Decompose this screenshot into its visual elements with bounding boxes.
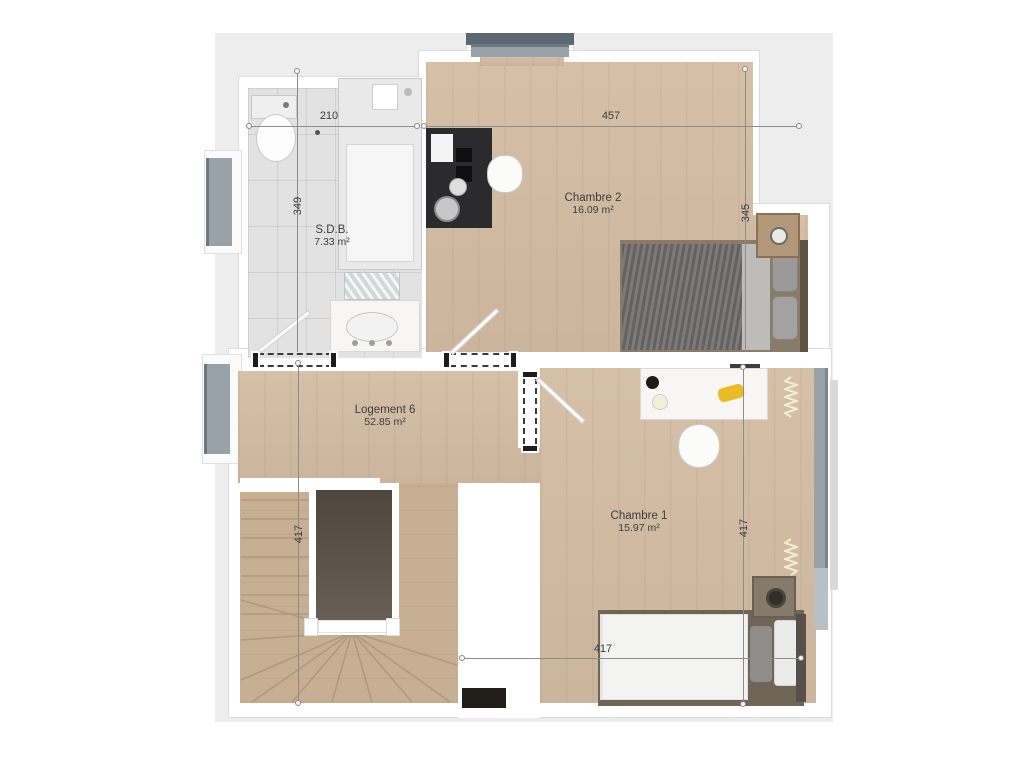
mirror-icon: [344, 272, 400, 300]
room-area: 52.85 m²: [340, 416, 430, 428]
chambre2-door-opening: [450, 353, 510, 367]
pot-icon: [646, 376, 659, 389]
room-label-sdb: S.D.B. 7.33 m²: [287, 224, 377, 248]
faucet-dot-icon: [352, 340, 358, 346]
plant-icon: [652, 394, 668, 410]
room-name: S.D.B.: [287, 224, 377, 236]
pillow-icon: [774, 620, 798, 686]
door-jamb: [329, 351, 338, 369]
door-jamb: [509, 351, 518, 369]
radiator-icon: [784, 376, 798, 418]
dim-label-chambre2-width: 457: [594, 110, 628, 122]
chambre1-door-opening: [523, 378, 537, 444]
round-mirror-icon: [449, 178, 467, 196]
dim-endpoint: [742, 66, 748, 72]
bed2-sheet-icon: [742, 244, 770, 350]
dim-label-bath-width: 210: [312, 110, 346, 122]
faucet-dot-icon: [369, 340, 375, 346]
bed2-blanket-icon: [622, 244, 742, 350]
shower-valve-icon: [372, 84, 398, 110]
dim-label-chambre1-width: 417: [586, 643, 620, 655]
dim-endpoint: [295, 360, 301, 366]
desk-paper-icon: [431, 134, 453, 162]
lamp-icon: [766, 588, 786, 608]
right-window-outer-sill: [830, 380, 838, 590]
dim-endpoint: [740, 364, 746, 370]
dim-endpoint: [798, 655, 804, 661]
chair-icon: [678, 424, 720, 468]
right-window-lower-icon: [814, 568, 828, 630]
room-area: 15.97 m²: [594, 522, 684, 534]
wall-strip-center: [458, 483, 540, 718]
left-window-top-icon: [206, 158, 232, 246]
door-mat-icon: [462, 688, 506, 708]
dim-line-chambre1-width: [463, 658, 801, 659]
bed1-duvet-icon: [600, 614, 748, 700]
room-name: Chambre 2: [548, 192, 638, 204]
dim-line-bath-width: [250, 126, 418, 127]
dim-endpoint: [414, 123, 420, 129]
shower-head-icon: [404, 88, 412, 96]
dim-endpoint: [294, 68, 300, 74]
room-label-chambre1: Chambre 1 15.97 m²: [594, 510, 684, 534]
desk-item-icon: [456, 148, 472, 162]
newel-post-left: [304, 618, 318, 636]
stairwell-opening: [316, 490, 392, 628]
bed2-headboard-icon: [800, 240, 808, 352]
dim-label-chambre2-height: 345: [740, 196, 752, 230]
dim-endpoint: [421, 123, 427, 129]
dim-endpoint: [796, 123, 802, 129]
stool-icon: [434, 196, 460, 222]
room-area: 7.33 m²: [287, 236, 377, 248]
floor-plan-page: 210 457 349 345 417 417 417 S.D.B. 7.33 …: [0, 0, 1024, 768]
dim-endpoint: [459, 655, 465, 661]
left-window-bottom-icon: [204, 364, 230, 454]
sink-icon: [346, 312, 398, 342]
dim-endpoint: [740, 701, 746, 707]
dim-label-chambre1-height: 417: [738, 511, 750, 545]
door-jamb: [521, 444, 539, 453]
room-area: 16.09 m²: [548, 204, 638, 216]
room-label-logement6: Logement 6 52.85 m²: [340, 404, 430, 428]
pillow-icon: [750, 626, 772, 682]
lamp-icon: [770, 227, 788, 245]
right-window-icon: [814, 368, 828, 568]
door-jamb: [442, 351, 451, 369]
dim-endpoint: [295, 700, 301, 706]
dim-label-stair-height: 417: [293, 517, 305, 551]
door-jamb: [251, 351, 260, 369]
dim-line-chambre2-width: [425, 126, 800, 127]
radiator-icon: [784, 538, 798, 576]
floor-drain-icon: [315, 130, 320, 135]
room-name: Logement 6: [340, 404, 430, 416]
top-window-icon: [471, 44, 569, 57]
flush-button-icon: [283, 102, 289, 108]
stair-railing-bar: [318, 620, 388, 633]
newel-post-right: [386, 618, 400, 636]
faucet-dot-icon: [386, 340, 392, 346]
toilet-bowl-icon: [256, 114, 296, 162]
dim-label-bath-height: 349: [292, 189, 304, 223]
chair-icon: [487, 155, 523, 193]
dim-endpoint: [246, 123, 252, 129]
room-label-chambre2: Chambre 2 16.09 m²: [548, 192, 638, 216]
room-name: Chambre 1: [594, 510, 684, 522]
pillow-icon: [772, 296, 798, 340]
